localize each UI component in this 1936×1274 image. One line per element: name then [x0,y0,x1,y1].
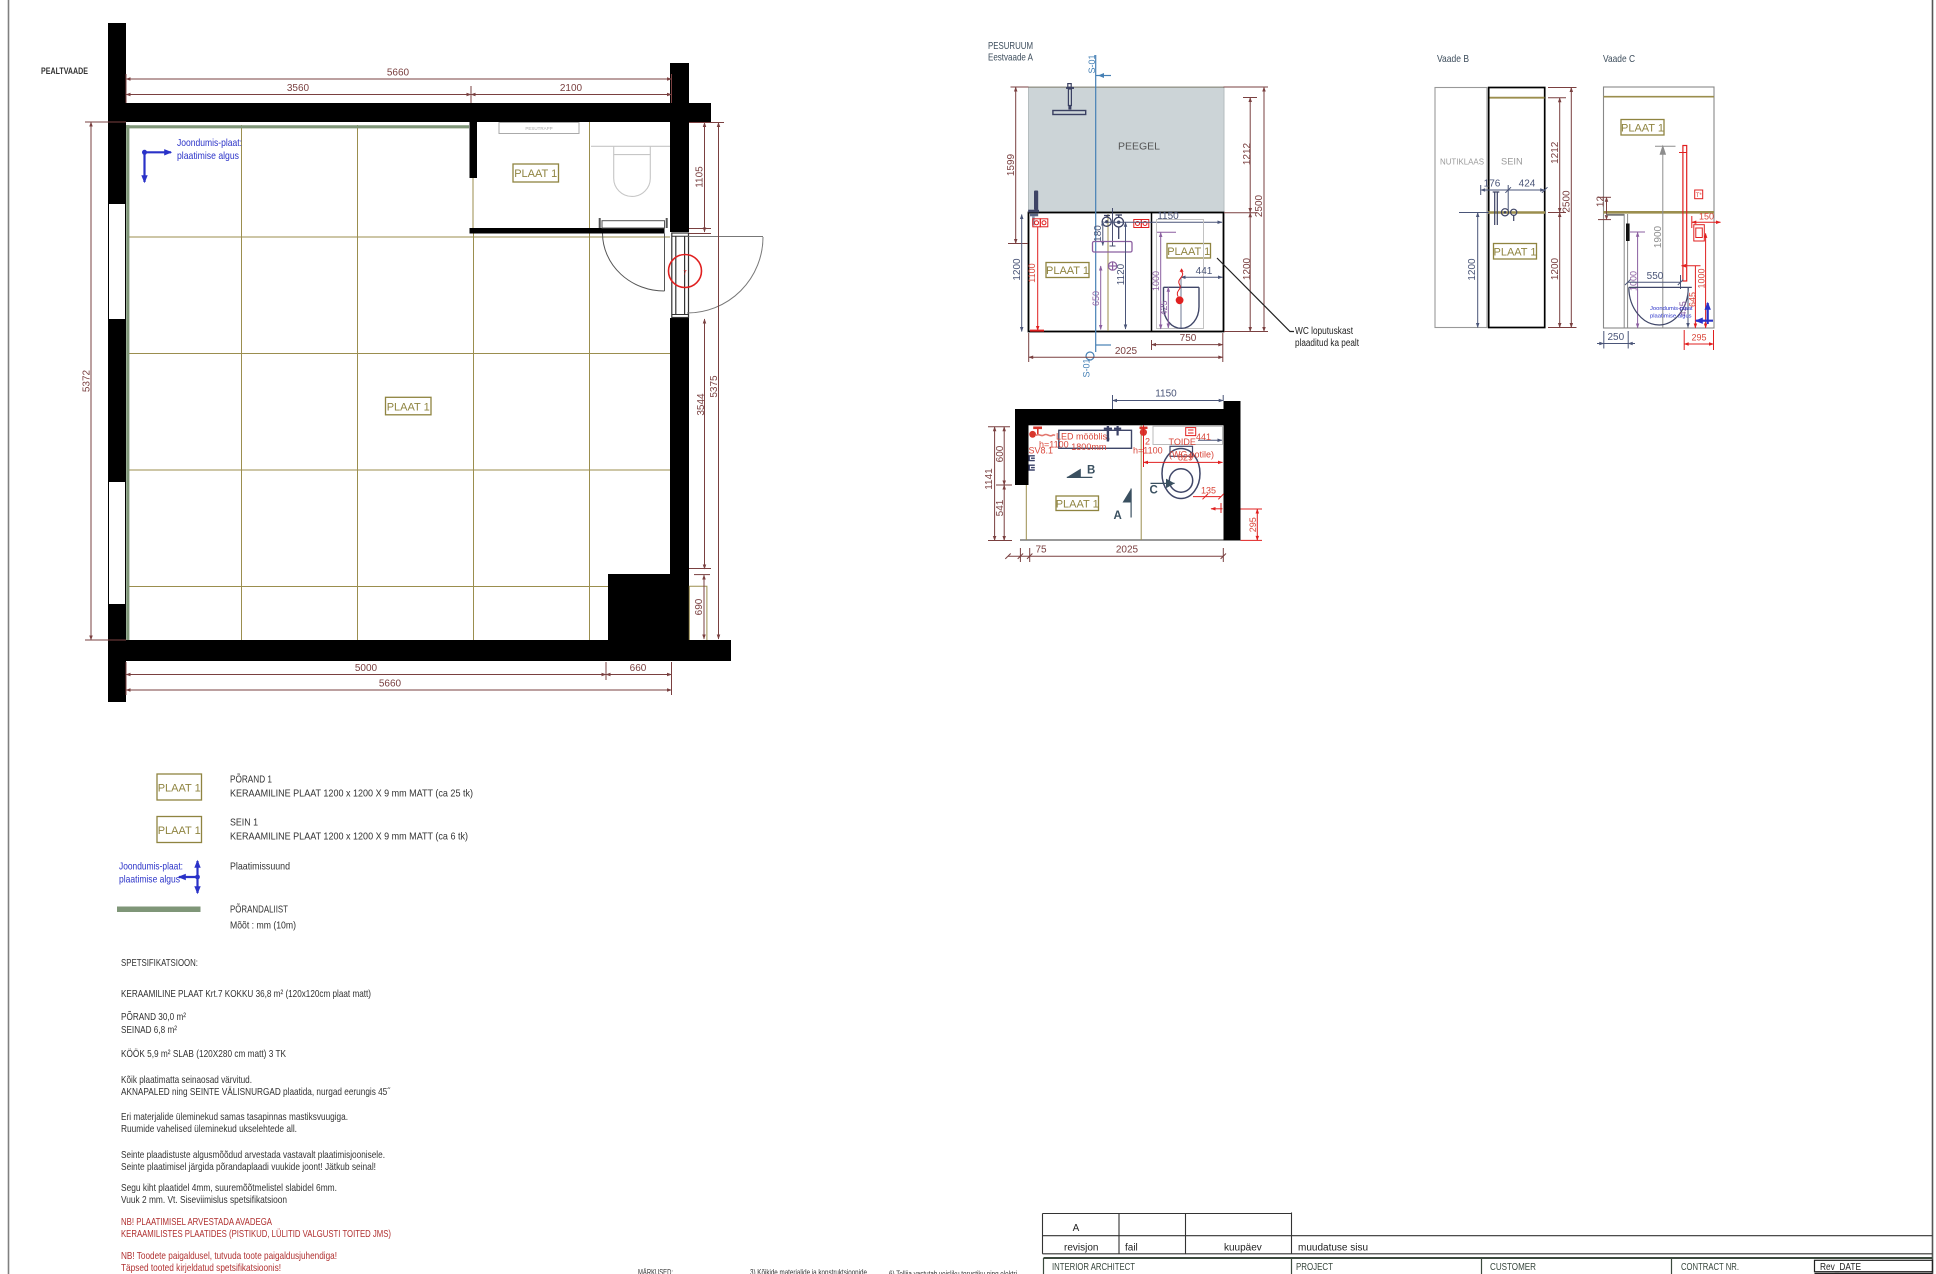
svg-text:PLAAT 1: PLAAT 1 [158,783,201,795]
svg-text:PESUTRAPP: PESUTRAPP [525,126,552,131]
svg-text:441: 441 [1196,266,1213,277]
svg-text:PLAAT 1: PLAAT 1 [158,825,201,837]
svg-text:SPETSIFIKATSIOON:: SPETSIFIKATSIOON: [121,958,198,969]
svg-text:plaatimise algus: plaatimise algus [1650,314,1692,320]
svg-text:Seinte plaatimisel järgida põr: Seinte plaatimisel järgida põrandaplaadi… [121,1162,376,1173]
svg-text:Joondumis-plaat:: Joondumis-plaat: [119,861,183,873]
svg-text:Rev_DATE: Rev_DATE [1820,1262,1861,1273]
svg-text:550: 550 [1647,271,1664,282]
svg-text:PÕRAND 1: PÕRAND 1 [230,773,272,786]
svg-text:S-01: S-01 [1082,358,1092,377]
svg-text:PÕRANDALIIST: PÕRANDALIIST [230,903,288,916]
svg-text:1000: 1000 [1697,268,1707,288]
svg-text:h=1100: h=1100 [1133,446,1163,456]
svg-text:650: 650 [1091,291,1101,306]
svg-text:T*: T* [1696,193,1703,199]
svg-text:1105: 1105 [695,166,706,188]
svg-text:135: 135 [1201,486,1216,496]
svg-text:3560: 3560 [287,83,310,94]
svg-text:1100: 1100 [1027,263,1037,282]
svg-text:KERAAMILINE PLAAT 1200 x 1200: KERAAMILINE PLAAT 1200 x 1200 X 9 mm MAT… [230,788,473,800]
svg-text:600: 600 [995,445,1006,462]
svg-text:SV8.1: SV8.1 [1029,446,1054,456]
svg-text:Mõõt : mm (10m): Mõõt : mm (10m) [230,920,296,932]
svg-text:150: 150 [1699,211,1714,221]
svg-text:5375: 5375 [709,375,720,398]
svg-text:Seinte plaadistuste algusmõõdu: Seinte plaadistuste algusmõõdud arvestad… [121,1150,385,1161]
svg-text:PLAAT 1: PLAAT 1 [1493,246,1536,258]
svg-text:CUSTOMER: CUSTOMER [1490,1262,1536,1273]
svg-text:revisjon: revisjon [1064,1243,1098,1254]
svg-text:SEIN: SEIN [1501,157,1523,167]
svg-text:2100: 2100 [560,83,583,94]
svg-text:PEEGEL: PEEGEL [1118,141,1160,153]
svg-text:1200: 1200 [1242,257,1253,280]
svg-text:muudatuse sisu: muudatuse sisu [1298,1243,1368,1254]
svg-text:7: 7 [683,271,687,277]
svg-text:KERAAMILINE PLAAT 1200 x 1200: KERAAMILINE PLAAT 1200 x 1200 X 9 mm MAT… [230,831,468,843]
svg-text:541: 541 [995,499,1006,516]
svg-text:PÕRAND 30,0 m²: PÕRAND 30,0 m² [121,1010,186,1023]
svg-text:CONTRACT NR.: CONTRACT NR. [1681,1262,1739,1273]
svg-text:MÄRKUSED:: MÄRKUSED: [638,1267,673,1274]
svg-text:1150: 1150 [1155,389,1177,400]
svg-text:Ruumide vahelised üleminekud u: Ruumide vahelised üleminekud ukselehtede… [121,1124,297,1135]
svg-text:kuupäev: kuupäev [1224,1243,1262,1254]
svg-text:1000: 1000 [1628,271,1638,291]
svg-text:829: 829 [1178,453,1193,463]
svg-text:PLAAT 1: PLAAT 1 [514,168,557,180]
svg-text:1212: 1212 [1242,142,1253,165]
svg-text:plaaditud ka pealt: plaaditud ka pealt [1295,338,1359,349]
svg-text:PLAAT 1: PLAAT 1 [1621,122,1664,134]
svg-text:1800mm: 1800mm [1071,442,1106,452]
svg-text:295: 295 [1248,517,1258,532]
svg-text:INTERIOR ARCHITECT: INTERIOR ARCHITECT [1052,1262,1135,1273]
svg-text:plaatimise algus: plaatimise algus [119,874,180,886]
svg-text:660: 660 [630,663,647,674]
svg-text:5000: 5000 [355,663,378,674]
svg-text:5660: 5660 [387,68,410,79]
svg-text:PEALTVAADE: PEALTVAADE [41,66,88,77]
svg-text:Vaade C: Vaade C [1603,53,1635,65]
svg-text:KERAAMILISTES PLAATIDES (PISTI: KERAAMILISTES PLAATIDES (PISTIKUD, LÜLIT… [121,1228,391,1240]
svg-text:3) Kõikide materjalide ja kons: 3) Kõikide materjalide ja konstruktsioon… [750,1267,867,1274]
svg-text:5660: 5660 [379,679,402,690]
svg-text:PLAAT 1: PLAAT 1 [387,401,430,413]
svg-text:A: A [1073,1223,1080,1234]
svg-text:6) Tellija vastutab veisliku t: 6) Tellija vastutab veisliku torustiku n… [889,1269,1017,1274]
svg-text:3544: 3544 [696,393,707,416]
svg-text:425: 425 [1159,300,1169,315]
svg-text:WC loputuskast: WC loputuskast [1295,326,1353,337]
svg-text:Eestvaade A: Eestvaade A [988,52,1033,64]
svg-text:1200: 1200 [1467,258,1478,281]
svg-text:fail: fail [1125,1243,1138,1254]
svg-text:1200: 1200 [1012,258,1023,281]
svg-text:S-01: S-01 [1087,54,1097,73]
svg-text:1120: 1120 [1116,263,1127,285]
svg-text:KÖÖK 5,9 m² SLAB (120X280 cm m: KÖÖK 5,9 m² SLAB (120X280 cm matt) 3 TK [121,1048,286,1060]
svg-text:690: 690 [694,598,705,615]
svg-text:C: C [1150,485,1158,497]
svg-text:plaatimise algus: plaatimise algus [177,150,239,162]
svg-text:1150: 1150 [1157,211,1179,222]
svg-text:2500: 2500 [1562,190,1573,213]
svg-text:PLAAT 1: PLAAT 1 [1046,265,1089,277]
svg-text:Joondumis-plaat: Joondumis-plaat [1650,306,1693,312]
svg-text:295: 295 [1691,333,1706,343]
svg-text:250: 250 [1607,332,1624,343]
svg-text:TOIDE: TOIDE [1169,437,1196,447]
svg-text:PESURUUM: PESURUUM [988,40,1033,52]
svg-text:1212: 1212 [1550,141,1561,164]
svg-text:Kõik plaatimatta seinaosad vär: Kõik plaatimatta seinaosad värvitud. [121,1075,252,1086]
svg-text:Joondumis-plaat:: Joondumis-plaat: [177,137,242,149]
svg-text:SEINAD 6,8 m²: SEINAD 6,8 m² [121,1025,177,1036]
svg-text:Eri materjalide üleminekud sam: Eri materjalide üleminekud samas tasapin… [121,1112,348,1123]
svg-text:Plaatimissuund: Plaatimissuund [230,861,290,873]
svg-text:B: B [1087,465,1095,477]
svg-text:2025: 2025 [1115,346,1138,357]
svg-text:1141: 1141 [984,468,995,490]
svg-text:750: 750 [1180,333,1197,344]
svg-text:Vaade B: Vaade B [1437,53,1469,65]
svg-text:NB! Toodete paigaldusel, tutvu: NB! Toodete paigaldusel, tutvuda toote p… [121,1251,337,1262]
svg-text:PLAAT 1: PLAAT 1 [1056,498,1099,510]
svg-text:176: 176 [1484,178,1501,189]
svg-text:1900: 1900 [1653,225,1664,248]
svg-text:Segu kiht plaatidel 4mm, suure: Segu kiht plaatidel 4mm, suuremõõtmelist… [121,1183,337,1194]
svg-text:Vuuk 2 mm. Vt. Siseviimislus s: Vuuk 2 mm. Vt. Siseviimislus spetsifikat… [121,1195,287,1206]
svg-text:12: 12 [1596,196,1607,208]
svg-text:2025: 2025 [1116,545,1139,556]
svg-text:Täpsed tooted kirjeldatud spet: Täpsed tooted kirjeldatud spetsifikatsio… [121,1263,281,1274]
svg-text:AKNAPALED ning SEINTE VÄLISN: AKNAPALED ning SEINTE VÄLISNURGAD plaati… [121,1086,390,1098]
svg-text:KERAAMILINE PLAAT Krt.7 KOKKU: KERAAMILINE PLAAT Krt.7 KOKKU 36,8 m² (1… [121,989,371,1000]
svg-text:2500: 2500 [1254,194,1265,217]
svg-text:SEIN 1: SEIN 1 [230,817,258,829]
svg-text:5372: 5372 [82,369,93,392]
svg-text:441: 441 [1196,432,1211,442]
svg-text:NUTIKLAAS: NUTIKLAAS [1440,157,1484,167]
svg-text:1000: 1000 [1151,271,1161,291]
svg-text:75: 75 [1035,545,1047,556]
svg-text:1200: 1200 [1550,257,1561,280]
svg-text:NB! PLAATIMISEL ARVESTADA AVAD: NB! PLAATIMISEL ARVESTADA AVADEGA [121,1217,272,1228]
svg-text:PROJECT: PROJECT [1296,1262,1333,1273]
svg-text:424: 424 [1519,178,1536,189]
svg-text:645: 645 [1687,292,1697,307]
svg-text:180: 180 [1093,225,1104,242]
svg-text:1599: 1599 [1006,153,1017,176]
svg-text:A: A [1114,510,1122,522]
